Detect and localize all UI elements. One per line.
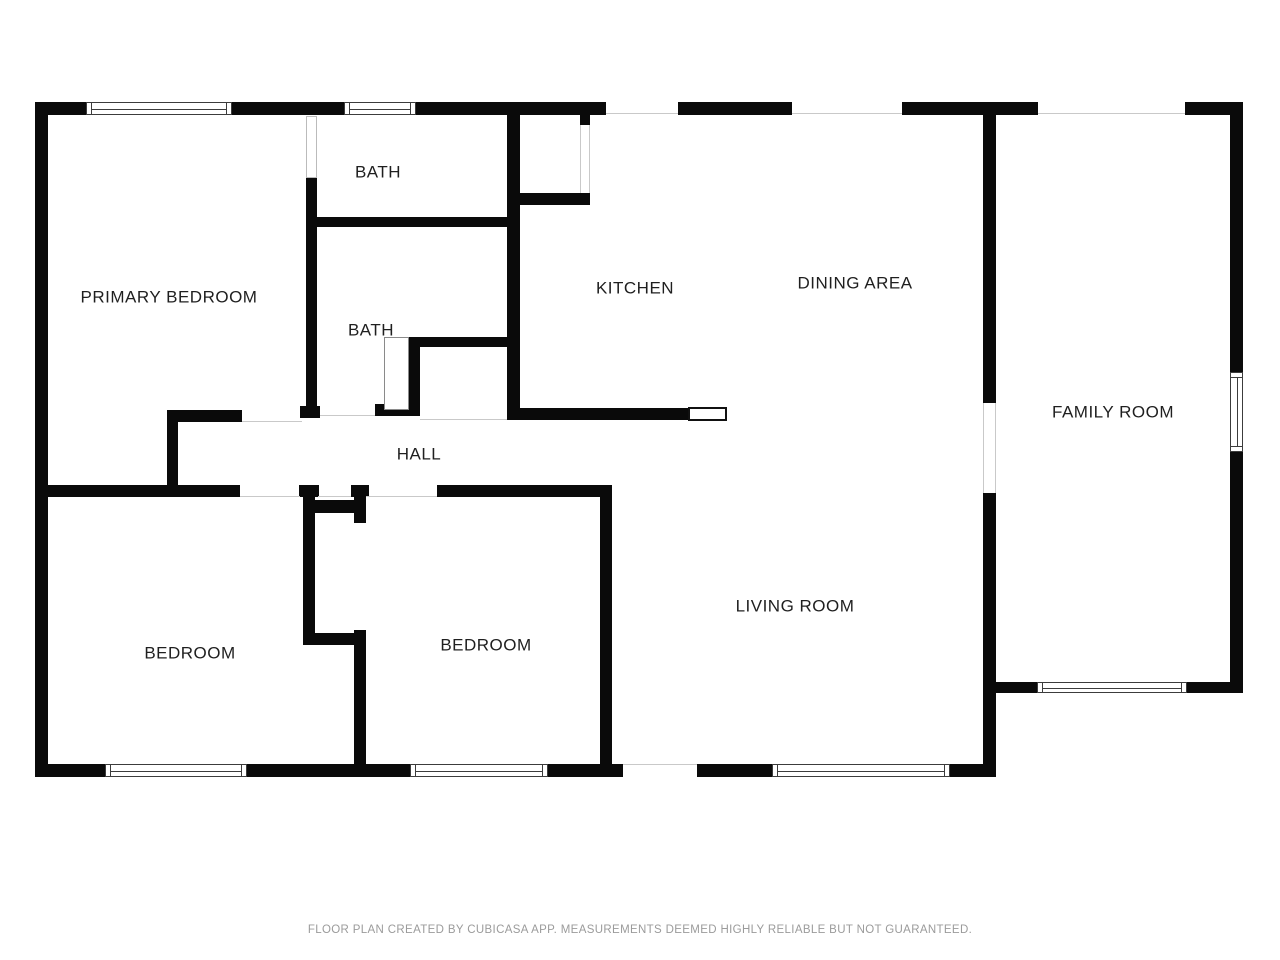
opening-family-side — [995, 403, 996, 493]
opening-pantry — [589, 125, 590, 193]
floor-plan: PRIMARY BEDROOM BATH BATH KITCHEN DINING… — [0, 0, 1280, 960]
footer-disclaimer: FLOOR PLAN CREATED BY CUBICASA APP. MEAS… — [308, 924, 972, 936]
wall-bedroom2-left — [354, 630, 366, 777]
wall-hall-top-left — [167, 410, 242, 422]
opening-family-top — [1038, 113, 1185, 114]
opening-bedroom2-door — [366, 496, 437, 497]
window — [344, 102, 416, 115]
wall-family-room-bottom — [996, 682, 1037, 693]
window — [105, 764, 247, 777]
wall-exterior-top — [678, 102, 792, 115]
wall-pantry-nub — [580, 115, 590, 125]
wall-bath-left-cap — [300, 406, 320, 418]
window — [772, 764, 950, 777]
room-label-bedroom-middle: BEDROOM — [440, 637, 531, 654]
door-leaf-bath — [384, 337, 409, 410]
wall-exterior-top — [35, 102, 86, 115]
opening-bedroom1-door — [240, 496, 300, 497]
wall-exterior-right — [1230, 452, 1243, 693]
wall-closet-left — [303, 485, 315, 645]
opening-primary-bedroom-door — [242, 421, 302, 422]
wall-primary-bedroom-bottom — [35, 485, 240, 497]
wall-hall-bottom — [437, 485, 612, 497]
room-label-dining-area: DINING AREA — [797, 275, 912, 292]
wall-exterior-right — [1230, 102, 1243, 372]
opening-hall-alcove — [420, 419, 507, 420]
wall-kitchen-bottom — [507, 408, 688, 420]
wall-family-room-bottom — [1187, 682, 1243, 693]
room-label-bath-hall: BATH — [348, 322, 394, 339]
wall-exterior-bottom — [697, 764, 772, 777]
wall-bedroom2-right — [600, 485, 612, 777]
room-label-living-room: LIVING ROOM — [736, 598, 855, 615]
wall-living-room-right — [983, 493, 996, 777]
door-leaf-primary-bath — [306, 116, 317, 178]
room-label-bedroom-left: BEDROOM — [144, 645, 235, 662]
opening-closet — [318, 496, 351, 497]
wall-exterior-top — [902, 102, 1038, 115]
wall-exterior-bottom — [35, 764, 105, 777]
opening-front-door — [623, 764, 697, 765]
window — [1037, 682, 1187, 693]
wall-exterior-bottom — [247, 764, 410, 777]
wall-bath-divider — [306, 217, 520, 227]
room-label-bath-ensuite: BATH — [355, 164, 401, 181]
wall-exterior-top — [416, 102, 606, 115]
wall-pantry-bottom — [520, 193, 590, 205]
window — [86, 102, 232, 115]
opening-family-side — [983, 403, 984, 493]
wall-kitchen-left — [507, 115, 520, 411]
opening-pantry — [580, 125, 581, 193]
room-label-hall: HALL — [397, 446, 442, 463]
wall-dining-family-divider — [983, 115, 996, 403]
room-label-primary-bedroom: PRIMARY BEDROOM — [81, 289, 258, 306]
room-label-kitchen: KITCHEN — [596, 280, 674, 297]
wall-exterior-left — [35, 102, 48, 777]
opening-top-2 — [792, 113, 902, 114]
wall-closet-nub — [315, 500, 354, 513]
wall-hall-left — [167, 410, 178, 497]
wall-exterior-top — [232, 102, 344, 115]
opening-top-1 — [606, 113, 678, 114]
window — [1230, 372, 1243, 452]
window — [410, 764, 548, 777]
wall-bath-left — [306, 178, 317, 412]
opening-bath-door — [320, 415, 375, 416]
room-label-family-room: FAMILY ROOM — [1052, 404, 1174, 421]
wall-closet-left-cap — [299, 485, 319, 497]
wall-bath2-bottom — [409, 337, 513, 347]
kitchen-counter — [688, 407, 727, 421]
